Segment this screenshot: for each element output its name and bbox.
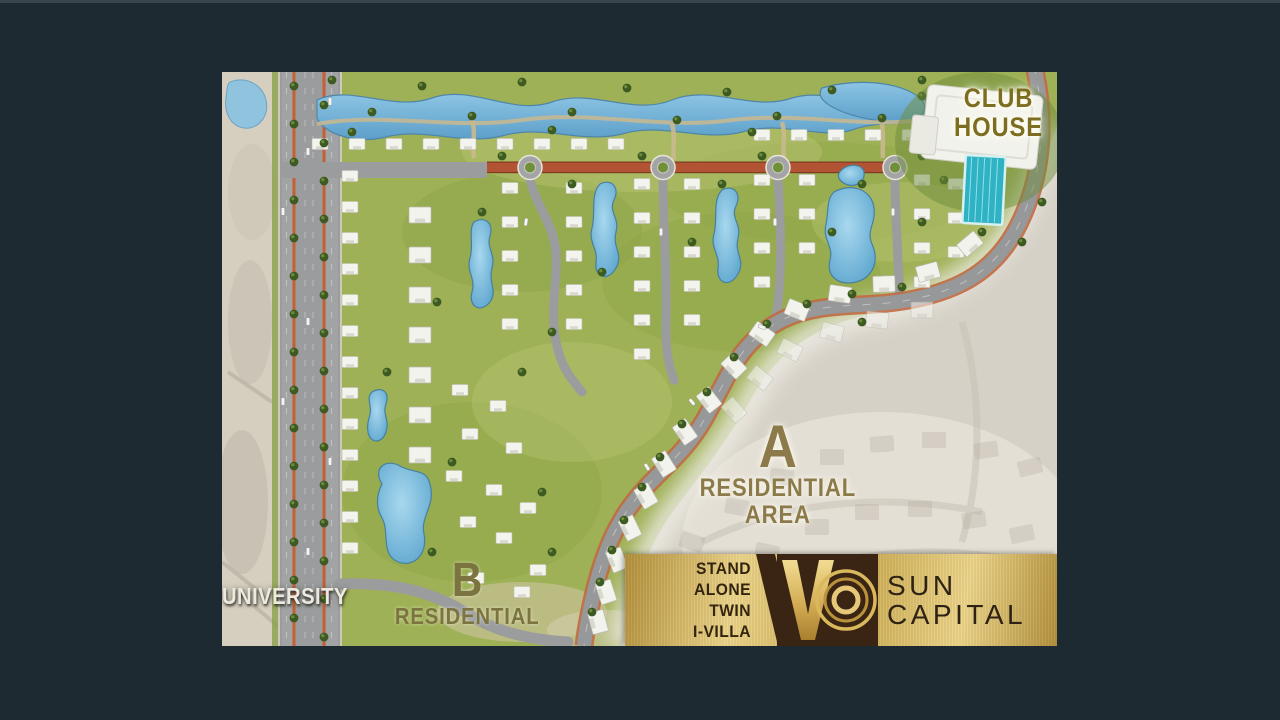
club-house-line2: HOUSE (955, 112, 1044, 142)
brand-line1: SUN (887, 571, 1057, 600)
area-a-letter: A (700, 418, 856, 475)
brand-line2: CAPITAL (887, 600, 1057, 629)
university-zone (222, 72, 280, 646)
vo-logo (751, 554, 878, 646)
access-road (280, 162, 487, 178)
master-plan-map: CLUB HOUSE A RESIDENTIAL AREA B RESIDENT… (222, 72, 1057, 646)
area-b-letter: B (395, 558, 540, 604)
area-b-line1: RESIDENTIAL (395, 604, 540, 629)
club-house-line1: CLUB (964, 83, 1034, 113)
unit-type-stand-alone: STAND ALONE (635, 558, 751, 600)
brand-name: SUN CAPITAL (878, 554, 1057, 646)
university-text: UNIVERSITY (222, 584, 348, 609)
area-a-line2: AREA (700, 502, 856, 529)
area-a-label: A RESIDENTIAL AREA (674, 418, 882, 529)
unit-type-twin: TWIN (635, 600, 751, 621)
screen-top-edge (0, 0, 1280, 3)
area-a-line1: RESIDENTIAL (700, 475, 856, 502)
club-swimming-pool (962, 155, 1006, 225)
area-b-label: B RESIDENTIAL (378, 558, 556, 628)
unit-types-list: STAND ALONE TWIN I-VILLA (625, 554, 751, 646)
brand-banner: STAND ALONE TWIN I-VILLA (625, 554, 1057, 646)
unit-type-i-villa: I-VILLA (635, 621, 751, 642)
university-label: UNIVERSITY (222, 584, 367, 609)
club-house-label: CLUB HOUSE (940, 84, 1057, 142)
